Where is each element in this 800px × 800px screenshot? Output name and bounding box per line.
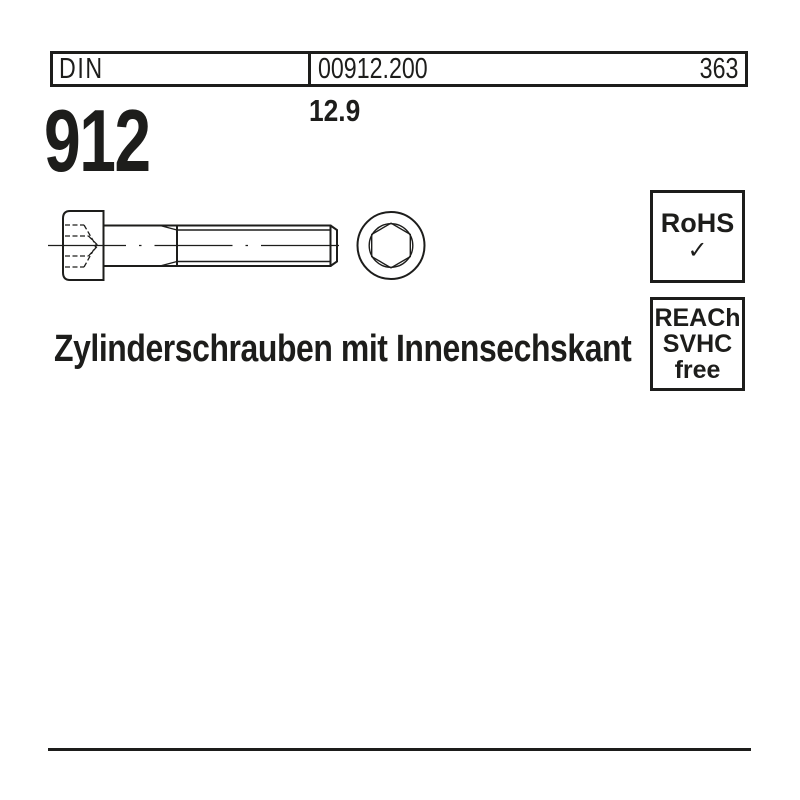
front-view: [358, 212, 425, 279]
reach-line: REACh: [654, 305, 740, 331]
rohs-badge: RoHS ✓: [650, 190, 745, 283]
catalog-page: DIN 00912.200 363 912 12.9: [0, 0, 800, 800]
header-cell-numbers: 00912.200 363: [311, 54, 745, 84]
product-title: Zylinderschrauben mit Innensechskant: [54, 330, 741, 368]
strength-class: 12.9: [309, 95, 369, 126]
rohs-label: RoHS: [661, 209, 735, 237]
head-circle: [358, 212, 425, 279]
standard-number: 912: [44, 97, 185, 185]
header-bar: DIN 00912.200 363: [50, 51, 748, 87]
chamfer-circle: [369, 224, 413, 268]
bottom-divider: [48, 748, 751, 751]
check-icon: ✓: [687, 237, 707, 263]
standard-label: DIN: [59, 55, 104, 84]
page-number: 363: [699, 55, 738, 84]
hex-socket: [372, 223, 411, 268]
side-view: [48, 211, 347, 280]
technical-drawing-icon: [40, 195, 440, 295]
header-cell-standard: DIN: [53, 54, 311, 84]
article-number: 00912.200: [318, 55, 428, 84]
